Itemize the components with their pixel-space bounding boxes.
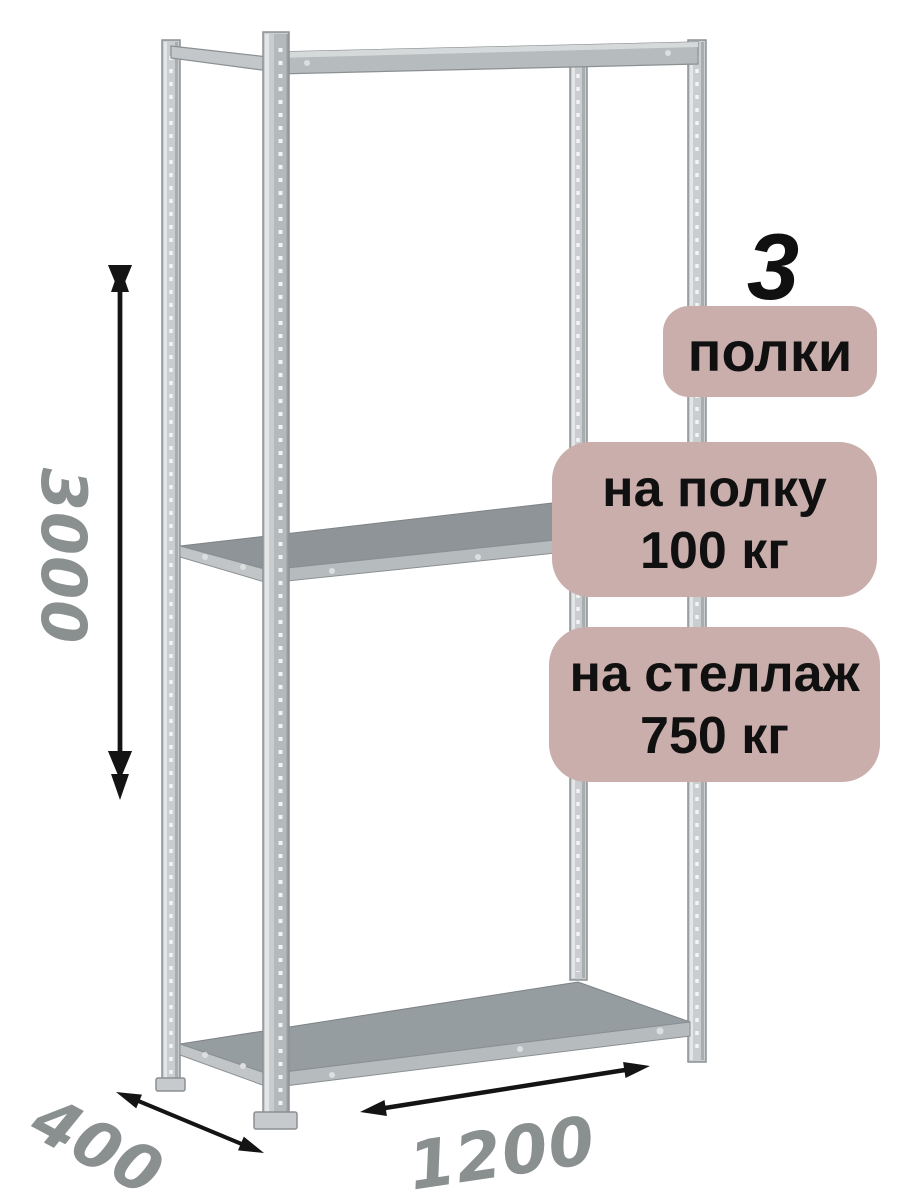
- shelf-count-label: полки: [688, 318, 853, 385]
- shelf-load-badge: на полку 100 кг: [552, 442, 877, 597]
- rack-load-badge: на стеллаж 750 кг: [549, 627, 880, 782]
- product-card: 3 полки на полку 100 кг на стеллаж 750 к…: [0, 0, 900, 1200]
- shelf-load-line2: 100 кг: [640, 520, 789, 582]
- rack-load-line2: 750 кг: [640, 705, 789, 767]
- rack-load-line1: на стеллаж: [570, 643, 860, 705]
- shelf-count-badge: полки: [663, 306, 877, 397]
- rack-post-front-left: [263, 32, 289, 1118]
- shelving-rack-illustration: [0, 0, 900, 1200]
- height-dimension-label: 3000: [24, 446, 104, 666]
- rack-post-back-left: [162, 40, 180, 1086]
- shelf-load-line1: на полку: [602, 458, 827, 520]
- height-dimension-arrow: [111, 266, 129, 800]
- rack-top-shelf: [171, 42, 698, 74]
- shelf-count-number: 3: [693, 214, 853, 320]
